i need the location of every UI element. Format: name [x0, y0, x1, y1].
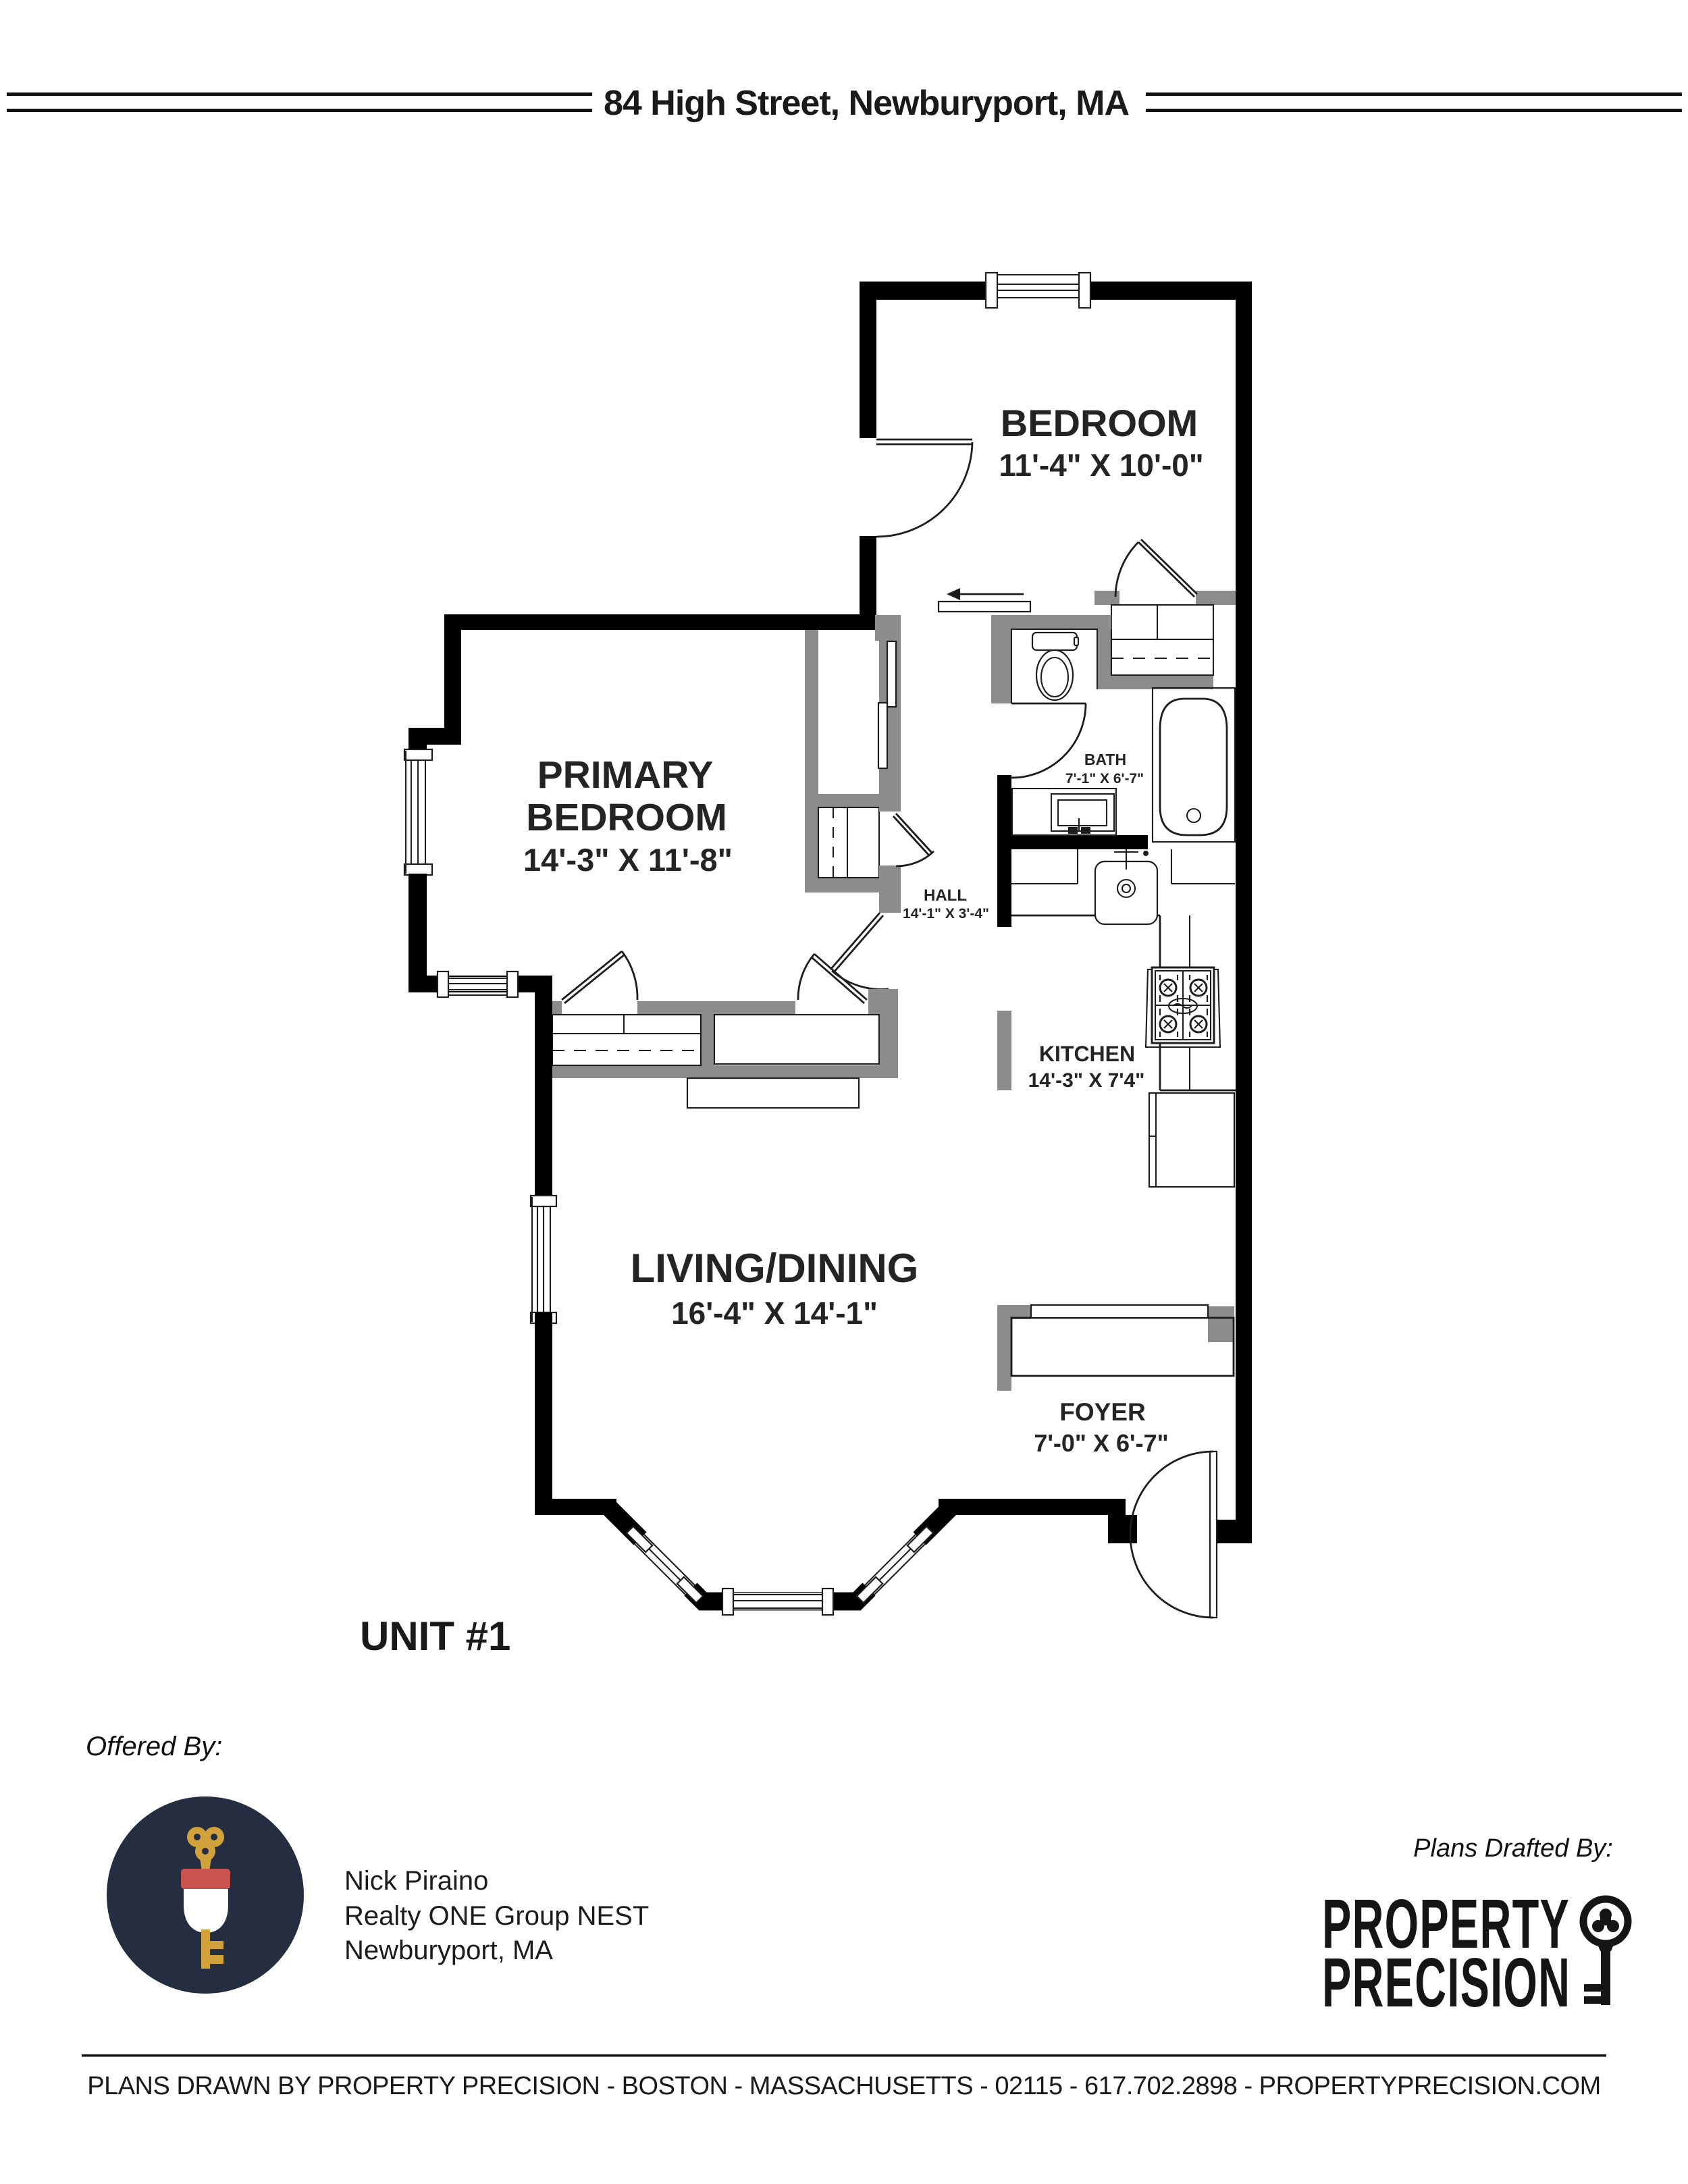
svg-text:Offered By:: Offered By:: [86, 1732, 222, 1761]
svg-text:Plans Drafted By:: Plans Drafted By:: [1413, 1834, 1613, 1863]
svg-text:BEDROOM: BEDROOM: [1001, 402, 1198, 444]
svg-text:PRECISION: PRECISION: [1322, 1944, 1571, 2022]
svg-text:UNIT #1: UNIT #1: [360, 1614, 510, 1659]
svg-text:Newburyport, MA: Newburyport, MA: [344, 1936, 553, 1965]
svg-text:14'-3" X 11'-8": 14'-3" X 11'-8": [523, 842, 733, 878]
svg-text:14'-1" X 3'-4": 14'-1" X 3'-4": [903, 906, 989, 922]
svg-text:Nick Piraino: Nick Piraino: [344, 1866, 488, 1896]
svg-text:7'-0" X 6'-7": 7'-0" X 6'-7": [1034, 1429, 1168, 1457]
svg-text:7'-1" X 6'-7": 7'-1" X 6'-7": [1065, 771, 1144, 787]
svg-text:Realty ONE Group NEST: Realty ONE Group NEST: [344, 1901, 649, 1931]
svg-text:14'-3" X 7'4": 14'-3" X 7'4": [1028, 1069, 1145, 1092]
svg-text:11'-4" X 10'-0": 11'-4" X 10'-0": [999, 448, 1203, 483]
svg-text:16'-4" X 14'-1": 16'-4" X 14'-1": [671, 1296, 878, 1331]
svg-text:PRIMARY: PRIMARY: [537, 753, 714, 797]
svg-text:KITCHEN: KITCHEN: [1039, 1042, 1135, 1066]
svg-text:BATH: BATH: [1084, 751, 1126, 768]
svg-text:FOYER: FOYER: [1059, 1398, 1145, 1426]
svg-text:LIVING/DINING: LIVING/DINING: [631, 1246, 919, 1291]
svg-text:BEDROOM: BEDROOM: [526, 796, 727, 839]
svg-text:PLANS DRAWN BY PROPERTY PRECIS: PLANS DRAWN BY PROPERTY PRECISION - BOST…: [87, 2072, 1601, 2100]
svg-text:84 High Street, Newburyport, M: 84 High Street, Newburyport, MA: [604, 84, 1129, 123]
svg-text:HALL: HALL: [924, 886, 967, 905]
